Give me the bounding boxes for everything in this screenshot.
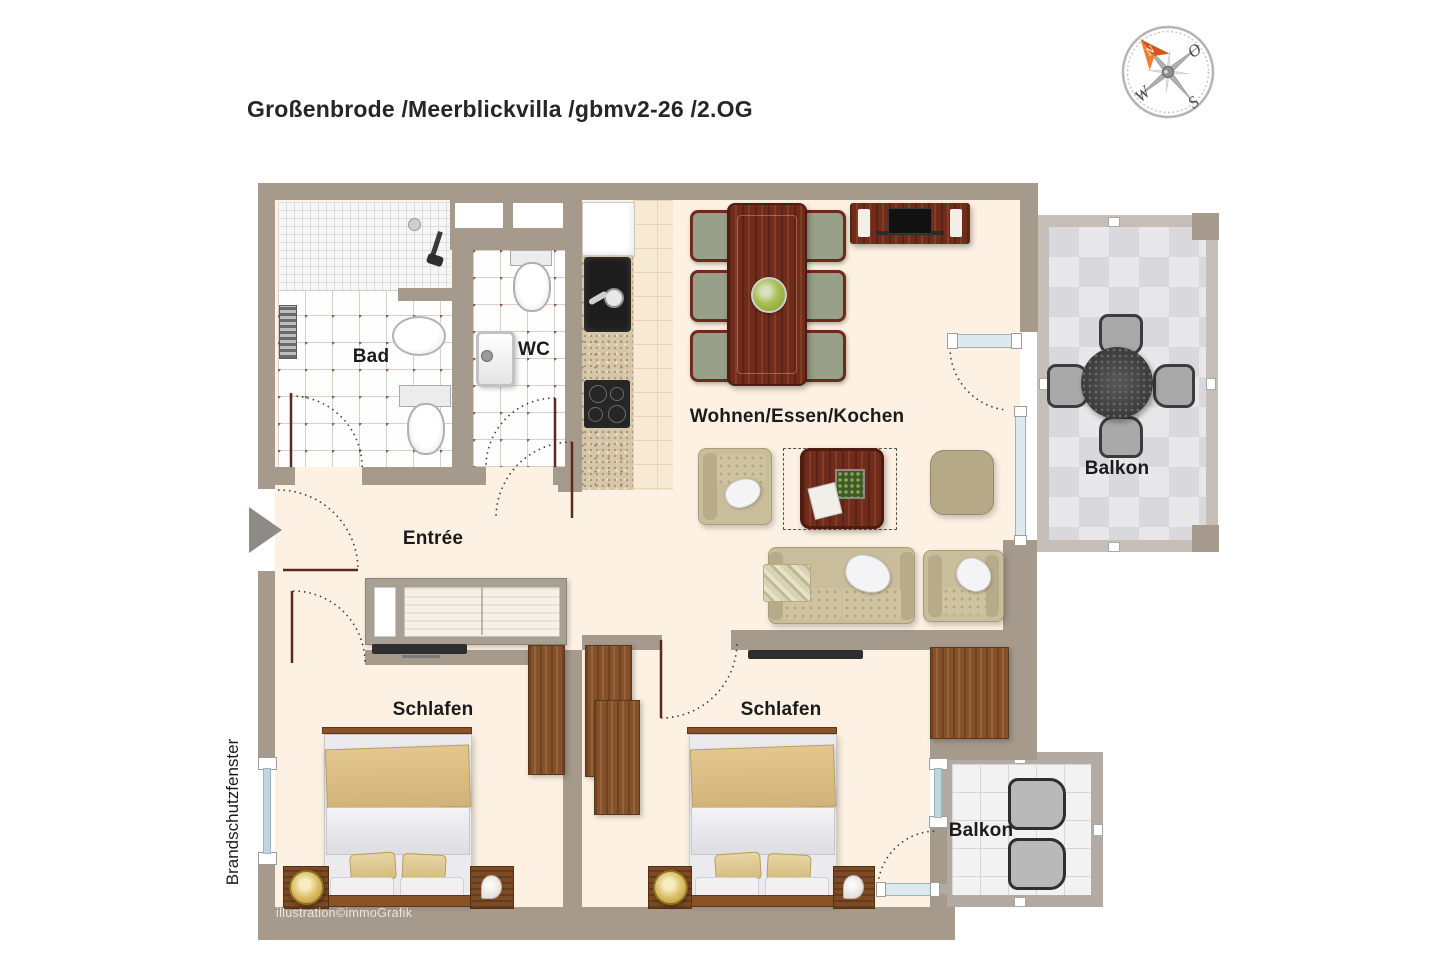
room-label-living: Wohnen/Essen/Kochen	[690, 406, 905, 428]
room-label-bad: Bad	[353, 346, 390, 368]
fire-window-label: Brandschutzfenster	[223, 739, 243, 885]
room-label-balcony-right: Balkon	[1085, 458, 1150, 480]
door-arc-living	[496, 442, 572, 518]
window-cap	[1014, 535, 1027, 546]
entrance-arrow-icon	[249, 507, 282, 553]
door-arc-bad	[291, 396, 362, 467]
bedroom-window	[934, 768, 942, 818]
door-arc-bedroom-left	[293, 591, 365, 663]
door-cap	[947, 333, 958, 349]
room-label-balcony-bottom: Balkon	[949, 820, 1014, 842]
door-cap	[930, 882, 940, 897]
door-arc-entrance	[278, 490, 358, 570]
room-label-bedroom-left: Schlafen	[393, 699, 474, 721]
door-arc-balcony-bedroom	[878, 831, 936, 884]
fire-protection-window	[263, 768, 271, 854]
door-cap	[876, 882, 886, 897]
door-cap	[1011, 333, 1022, 349]
door-arc-balcony-living	[950, 347, 1006, 410]
room-label-bedroom-right: Schlafen	[741, 699, 822, 721]
window-cap	[1014, 406, 1027, 417]
door-arc-bedroom-right	[661, 642, 737, 718]
fixed-glass-panel	[1015, 408, 1026, 544]
door-arc-wc	[486, 398, 555, 467]
floorplan-page: Großenbrode /Meerblickvilla /gbmv2-26 /2…	[0, 0, 1440, 960]
door-swing-overlay	[0, 0, 1440, 960]
room-label-entree: Entrée	[403, 528, 463, 550]
room-label-wc: WC	[518, 339, 550, 361]
watermark: illustration©immoGrafik	[276, 906, 412, 920]
